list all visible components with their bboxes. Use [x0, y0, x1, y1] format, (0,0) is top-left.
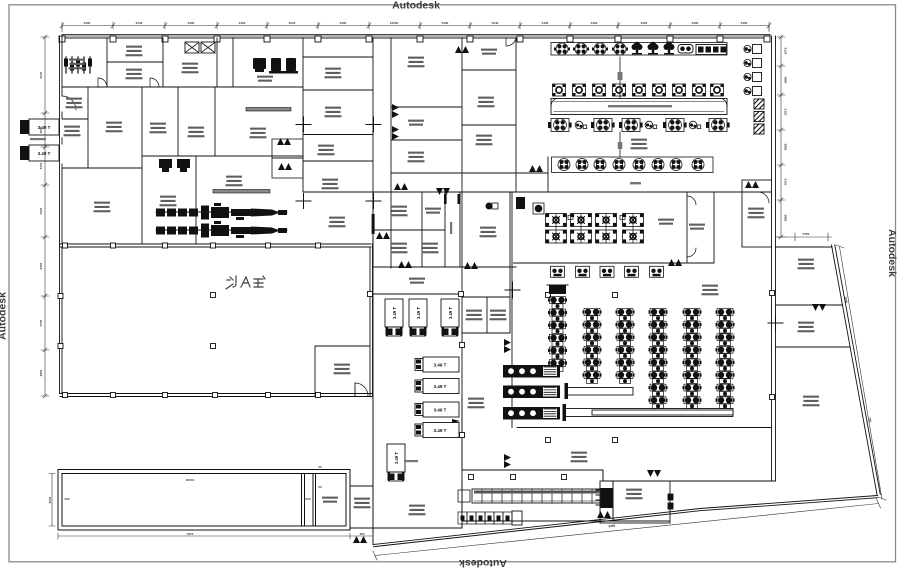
svg-text:9855: 9855	[608, 524, 615, 529]
svg-text:7975: 7975	[187, 532, 194, 536]
svg-text:5243: 5243	[492, 21, 499, 25]
svg-text:5400: 5400	[741, 21, 748, 25]
svg-text:6120: 6120	[784, 109, 788, 116]
svg-text:4000: 4000	[39, 162, 43, 169]
svg-text:5700: 5700	[39, 319, 43, 326]
svg-text:5400: 5400	[188, 21, 195, 25]
svg-text:5880: 5880	[784, 215, 788, 222]
svg-text:50: 50	[318, 485, 322, 489]
svg-text:500: 500	[305, 497, 310, 501]
svg-text:5400: 5400	[84, 21, 91, 25]
svg-text:5400: 5400	[442, 21, 449, 25]
svg-text:6300: 6300	[39, 262, 43, 269]
svg-text:6120: 6120	[784, 179, 788, 186]
svg-text:8100: 8100	[39, 71, 43, 78]
svg-text:3.49 T: 3.49 T	[38, 151, 51, 156]
svg-text:Autodesk: Autodesk	[886, 229, 898, 277]
svg-text:3400: 3400	[239, 21, 246, 25]
svg-text:3600: 3600	[39, 126, 43, 133]
svg-text:3400: 3400	[641, 21, 648, 25]
svg-text:Autodesk: Autodesk	[459, 557, 507, 569]
svg-text:6120: 6120	[784, 48, 788, 55]
svg-text:5880: 5880	[784, 77, 788, 84]
svg-text:20001: 20001	[186, 478, 195, 482]
svg-text:5400: 5400	[542, 21, 549, 25]
svg-text:5240: 5240	[136, 21, 143, 25]
svg-text:10000: 10000	[390, 21, 399, 25]
svg-text:5400: 5400	[39, 207, 43, 214]
svg-text:Autodesk: Autodesk	[392, 0, 440, 12]
svg-text:4800: 4800	[39, 369, 43, 376]
svg-text:5243: 5243	[289, 21, 296, 25]
svg-text:5755: 5755	[803, 232, 810, 236]
svg-text:Autodesk: Autodesk	[0, 292, 9, 340]
svg-text:380: 380	[359, 532, 364, 536]
svg-text:500: 500	[64, 497, 69, 501]
svg-text:50: 50	[318, 465, 322, 469]
svg-text:5400: 5400	[591, 21, 598, 25]
svg-text:5400: 5400	[692, 21, 699, 25]
svg-text:6000: 6000	[48, 496, 52, 503]
svg-text:5880: 5880	[784, 144, 788, 151]
svg-text:5400: 5400	[340, 21, 347, 25]
